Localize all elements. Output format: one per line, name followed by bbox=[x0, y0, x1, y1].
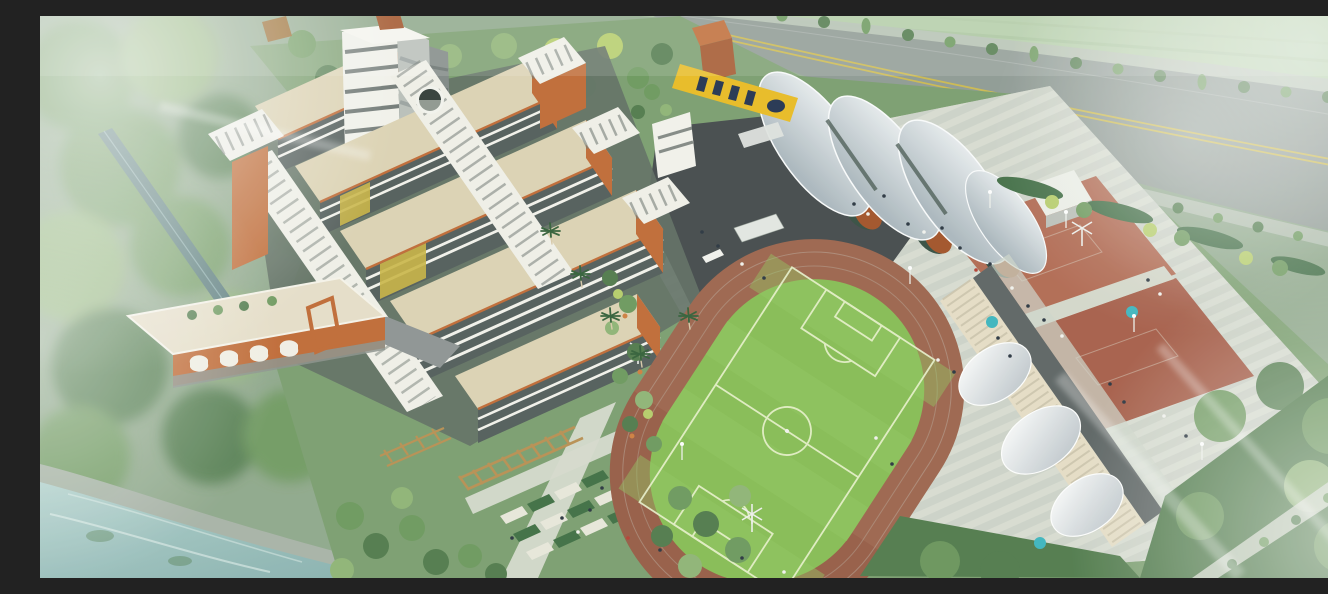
campus-aerial-rendering: Bird's-eye master-plan rendering of a sc… bbox=[40, 16, 1328, 578]
atmosphere-haze bbox=[40, 16, 1328, 578]
